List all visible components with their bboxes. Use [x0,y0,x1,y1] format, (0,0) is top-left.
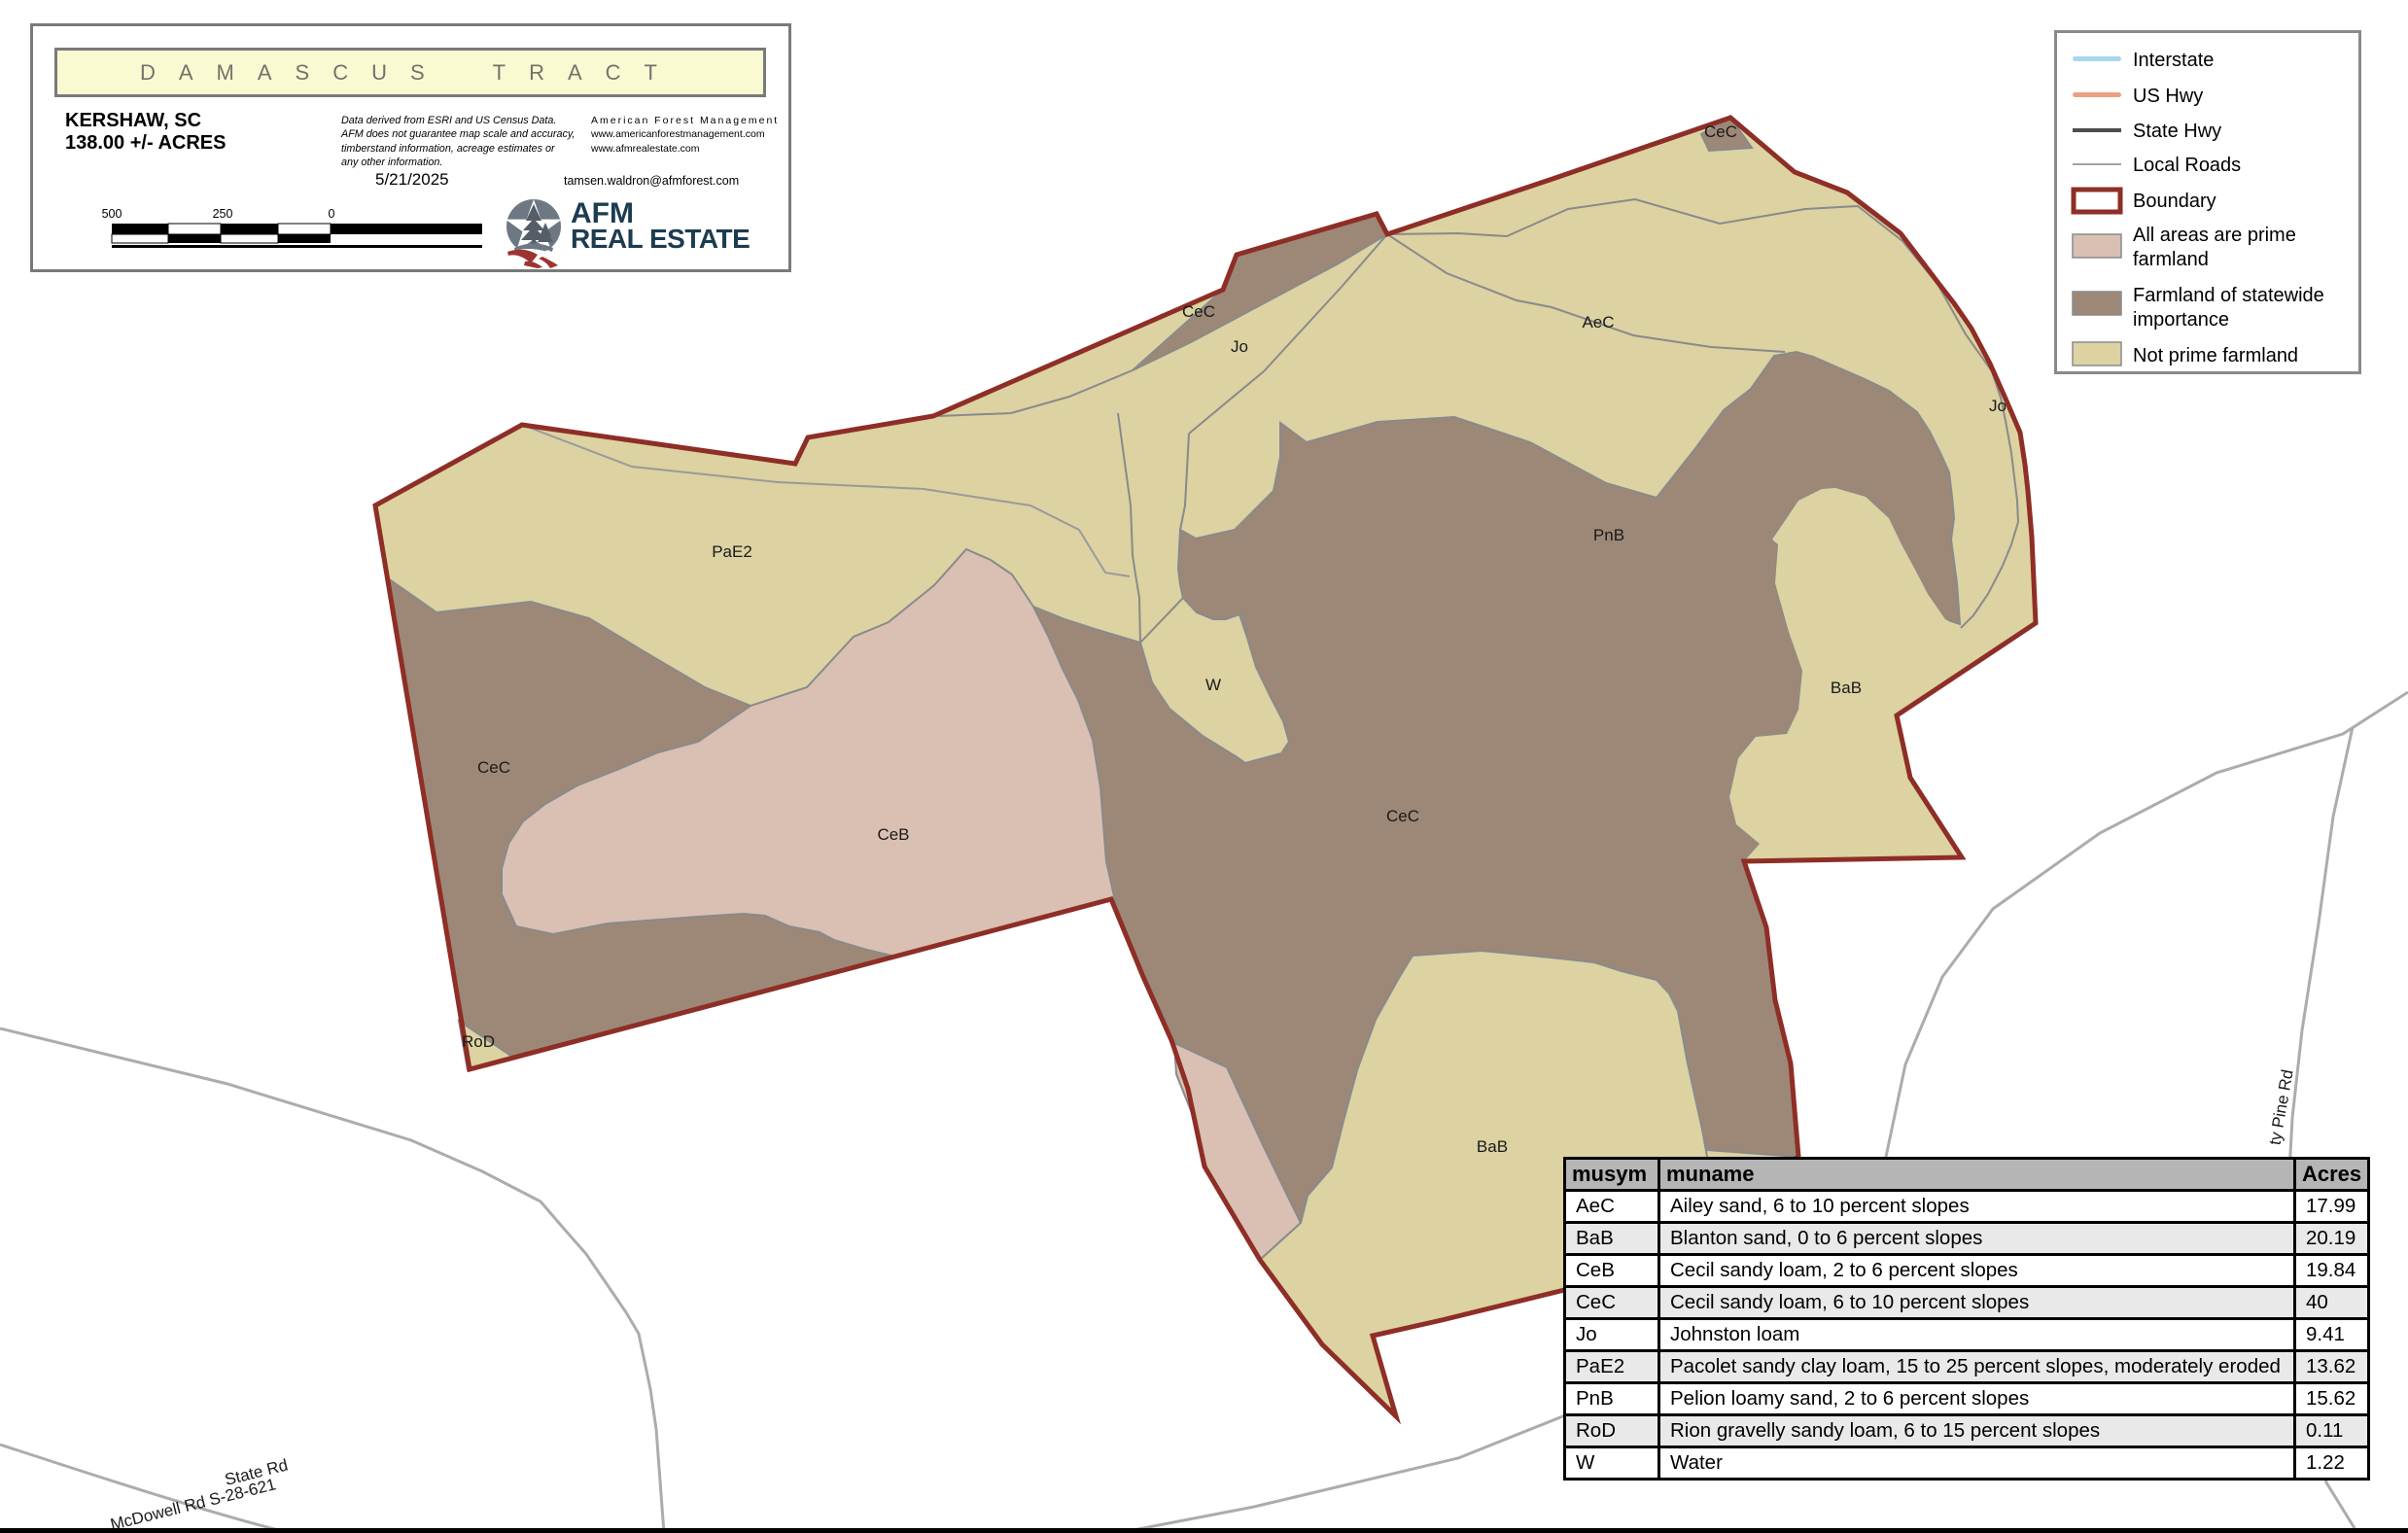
svg-text:Jo: Jo [1989,397,2007,415]
svg-text:W: W [1205,676,1221,694]
svg-text:Local Roads: Local Roads [2133,155,2241,176]
svg-text:CeC: CeC [1182,302,1215,321]
svg-text:farmland: farmland [2133,249,2209,270]
svg-text:CeC: CeC [1386,807,1419,825]
svg-text:Interstate: Interstate [2133,50,2214,71]
svg-text:CeB: CeB [877,825,909,844]
svg-text:0: 0 [329,207,335,221]
svg-text:BaB: BaB [1477,1137,1508,1156]
svg-text:PaE2: PaE2 [712,542,752,561]
svg-text:BaB: BaB [1831,679,1862,697]
svg-text:RoD: RoD [462,1032,495,1051]
svg-text:500: 500 [102,207,122,221]
svg-text:US Hwy: US Hwy [2133,86,2203,107]
svg-text:Not prime farmland: Not prime farmland [2133,345,2298,366]
svg-text:Boundary: Boundary [2133,191,2216,212]
svg-text:State Hwy: State Hwy [2133,121,2221,142]
svg-text:CeC: CeC [477,758,510,777]
svg-text:All areas are prime: All areas are prime [2133,225,2296,246]
svg-text:CeC: CeC [1704,122,1737,141]
svg-text:PnB: PnB [1593,526,1624,544]
svg-text:Jo: Jo [1231,337,1248,356]
svg-text:250: 250 [213,207,233,221]
svg-text:AeC: AeC [1582,313,1614,331]
svg-text:importance: importance [2133,309,2229,331]
svg-text:Farmland of statewide: Farmland of statewide [2133,285,2324,306]
